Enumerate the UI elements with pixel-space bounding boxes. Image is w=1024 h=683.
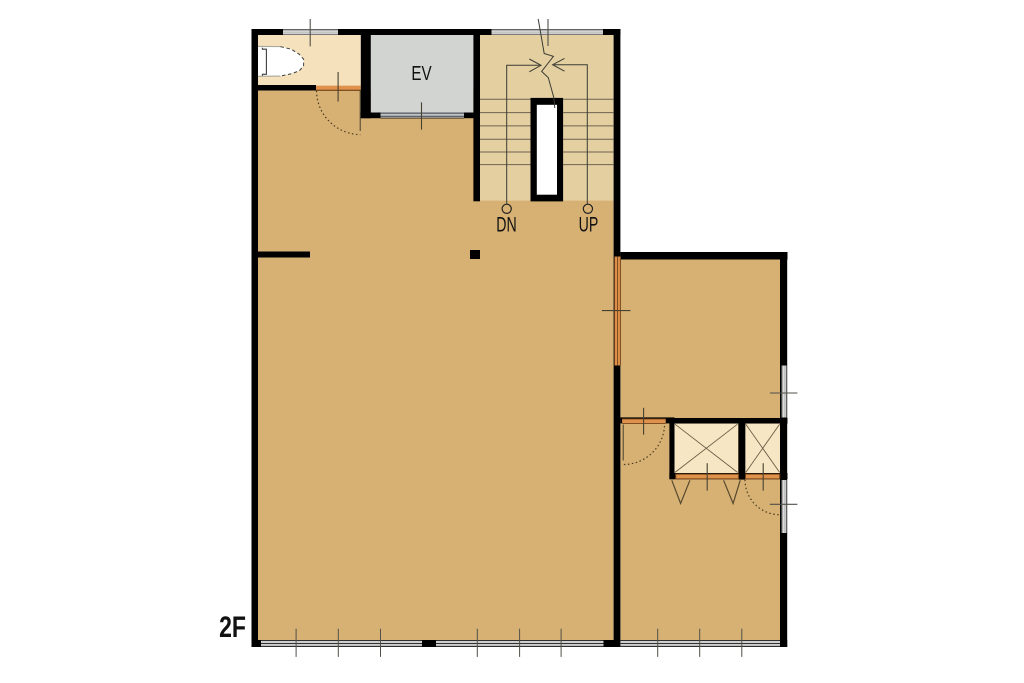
svg-text:EV: EV [411, 62, 432, 85]
svg-text:2F: 2F [219, 610, 246, 643]
svg-text:UP: UP [579, 213, 599, 236]
svg-text:DN: DN [496, 213, 516, 236]
